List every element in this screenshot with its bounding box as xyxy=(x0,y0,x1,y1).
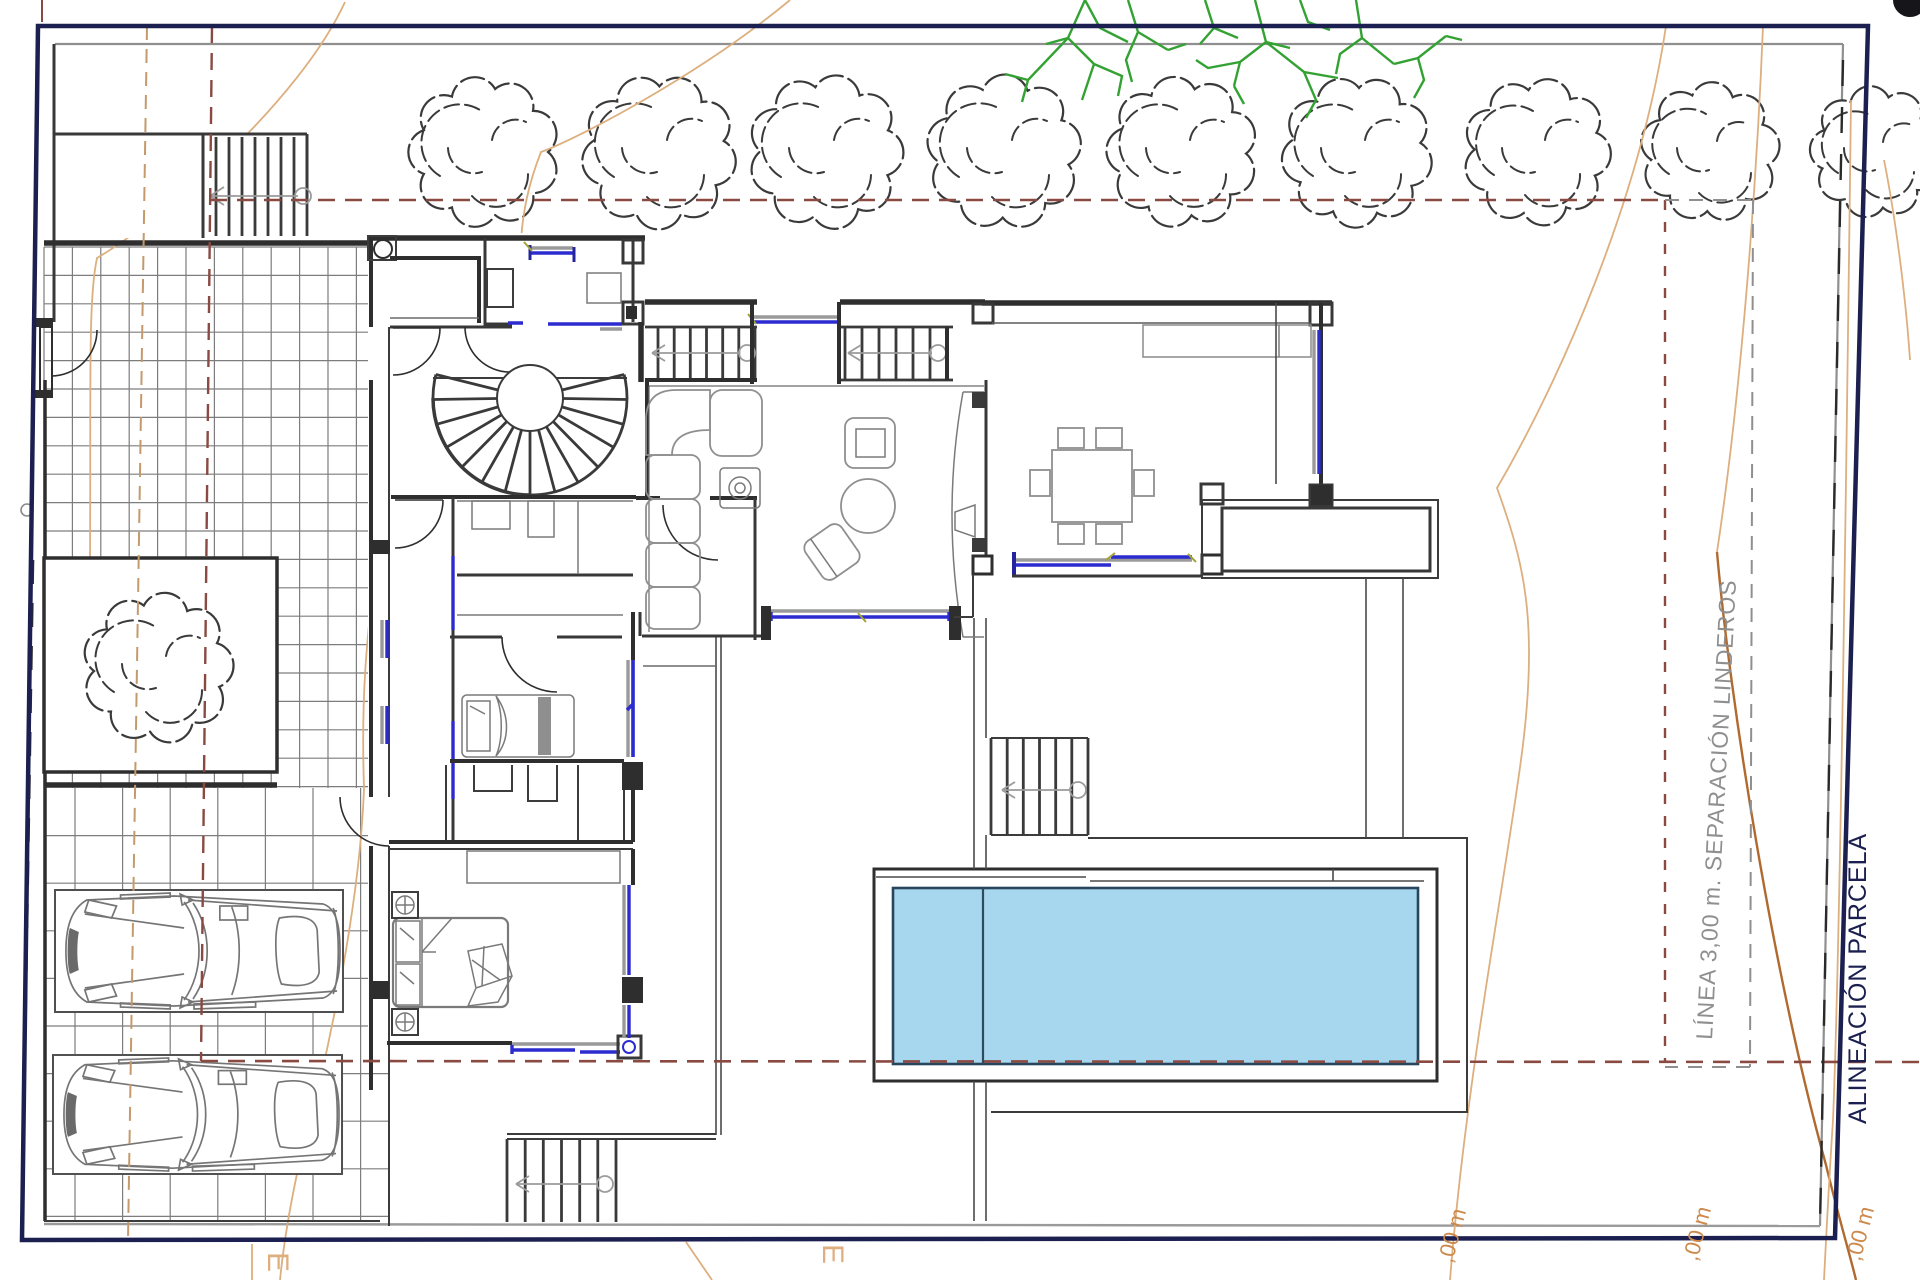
svg-text:ALINEACIÓN PARCELA: ALINEACIÓN PARCELA xyxy=(1843,833,1872,1124)
svg-text:E: E xyxy=(261,1252,294,1272)
svg-text:E: E xyxy=(816,1244,849,1264)
